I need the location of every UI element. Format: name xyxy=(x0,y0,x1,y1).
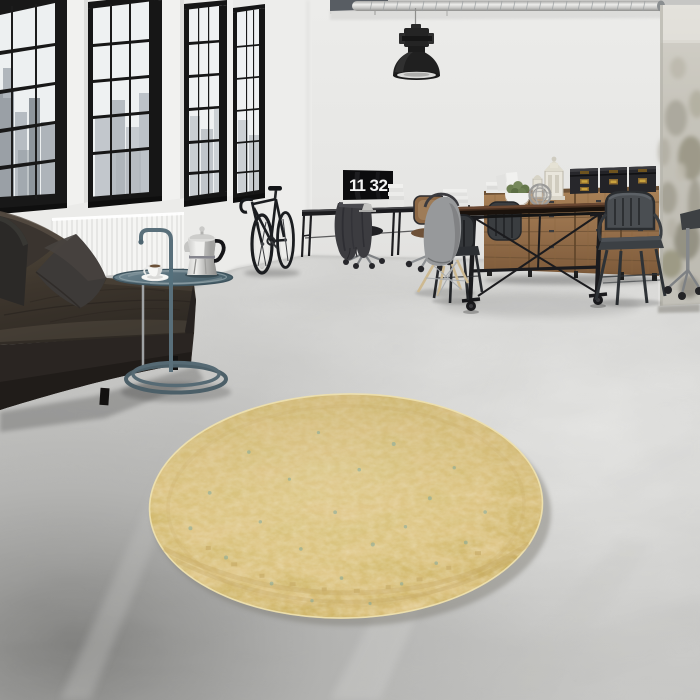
svg-text:32: 32 xyxy=(370,176,388,195)
svg-text:11: 11 xyxy=(349,176,366,195)
